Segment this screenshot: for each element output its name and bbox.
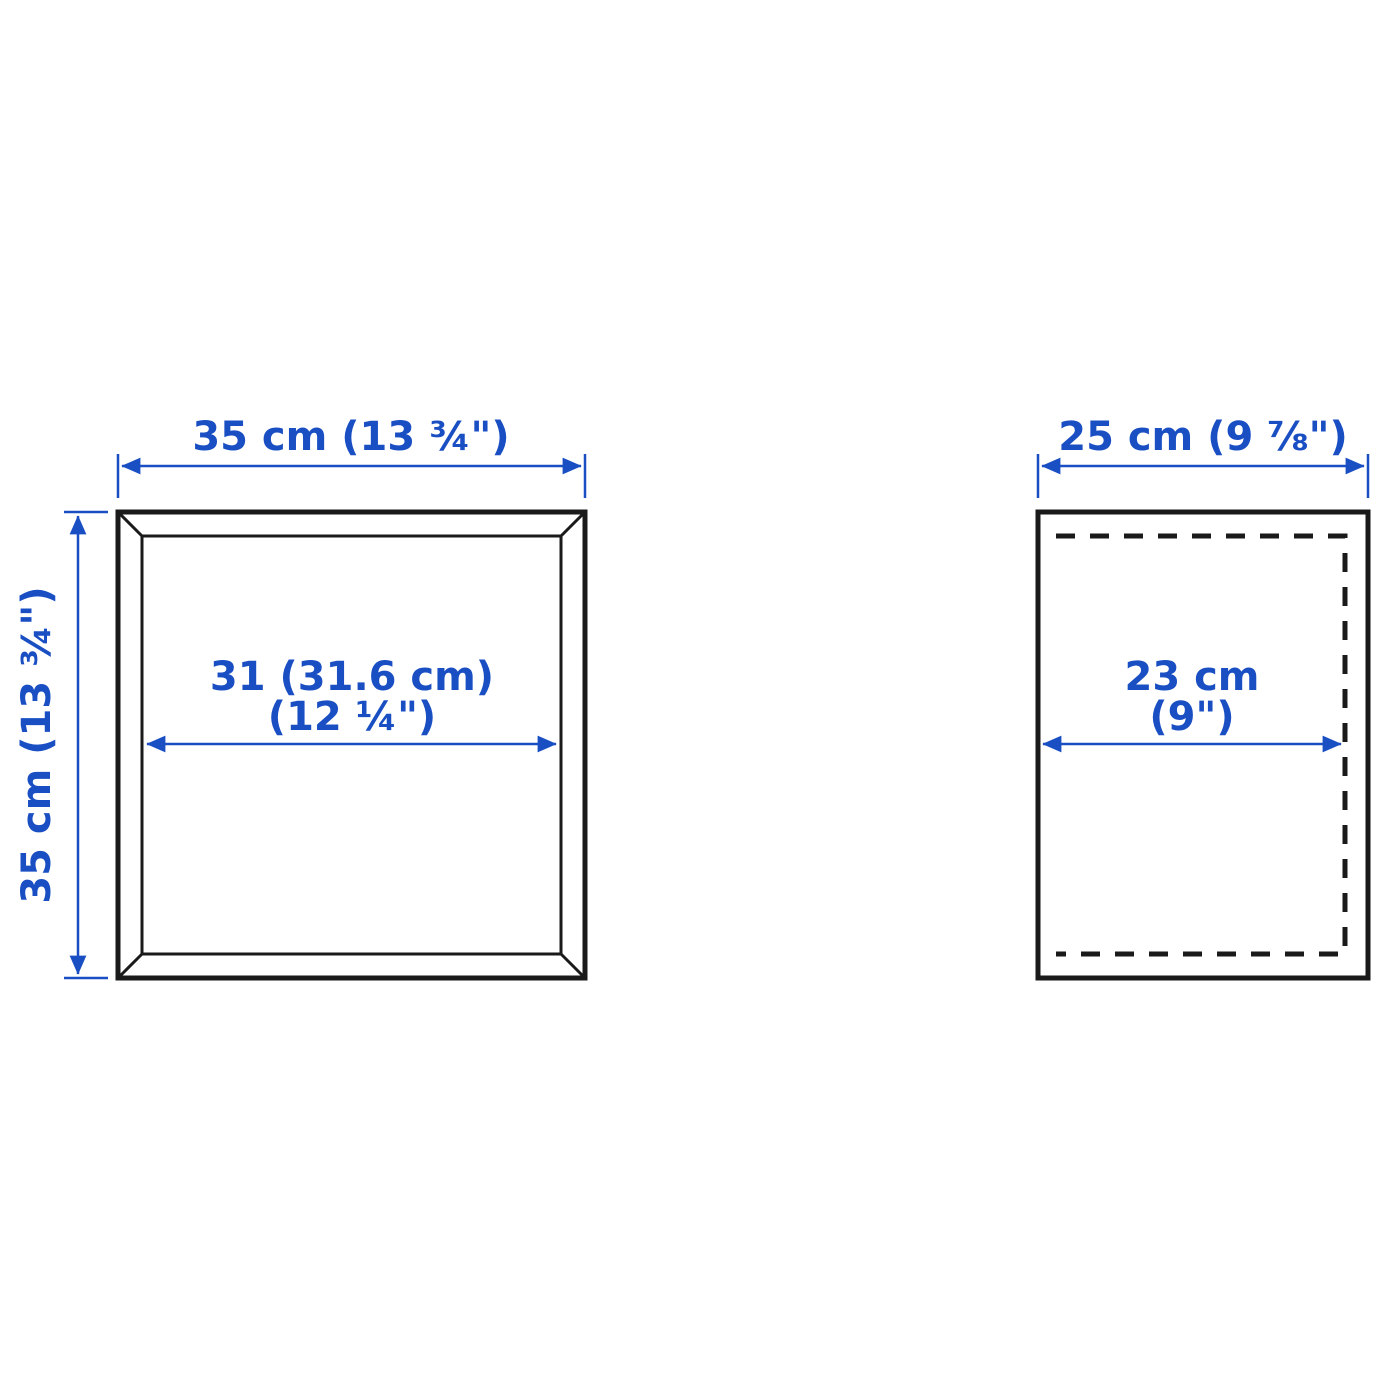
front-bevel-top-left	[118, 512, 142, 536]
side-width-label: 25 cm (9 ⅞")	[1058, 414, 1347, 460]
front-view-diagram: 35 cm (13 ¾") 35 cm (13 ¾") 31 (31.6 cm)…	[14, 414, 585, 978]
front-height-dimension: 35 cm (13 ¾")	[14, 512, 108, 978]
side-depth-dimension: 23 cm (9")	[1043, 654, 1341, 744]
front-width-label: 35 cm (13 ¾")	[192, 414, 509, 460]
front-inner-width-dimension: 31 (31.6 cm) (12 ¼")	[147, 654, 556, 744]
front-bevel-bottom-right	[561, 954, 585, 978]
side-width-dimension: 25 cm (9 ⅞")	[1038, 414, 1368, 498]
side-view-diagram: 25 cm (9 ⅞") 23 cm (9")	[1038, 414, 1368, 978]
dimension-diagram-canvas: 35 cm (13 ¾") 35 cm (13 ¾") 31 (31.6 cm)…	[0, 0, 1400, 1400]
front-height-label: 35 cm (13 ¾")	[14, 586, 60, 903]
front-bevel-bottom-left	[118, 954, 142, 978]
front-width-dimension: 35 cm (13 ¾")	[118, 414, 585, 498]
side-depth-label-line2: (9")	[1149, 694, 1234, 740]
dimension-diagram-page: 35 cm (13 ¾") 35 cm (13 ¾") 31 (31.6 cm)…	[0, 0, 1400, 1400]
front-inner-width-label-line2: (12 ¼")	[268, 694, 436, 740]
front-bevel-top-right	[561, 512, 585, 536]
